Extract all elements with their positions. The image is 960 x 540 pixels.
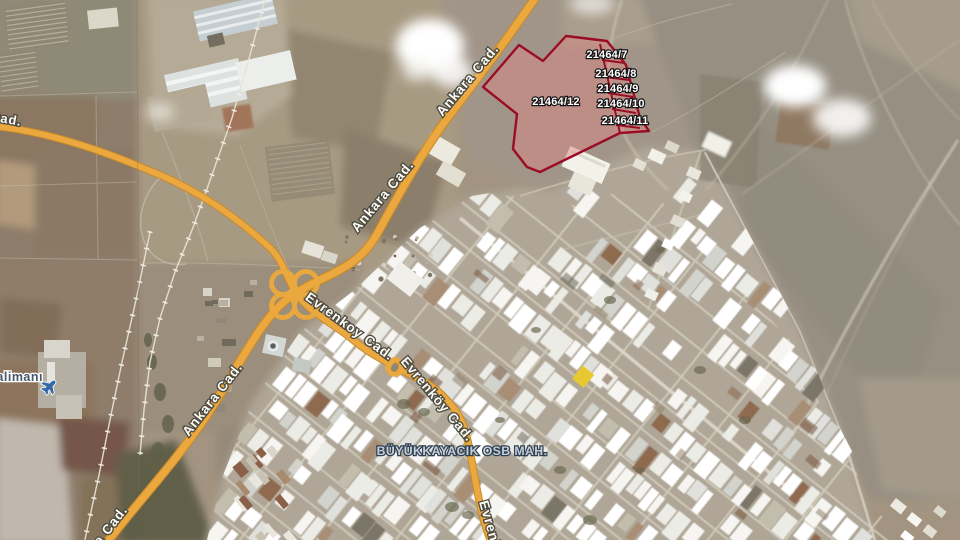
svg-text:21464/10: 21464/10: [597, 98, 644, 110]
svg-text:BÜYÜKKAYACIK OSB MAH.: BÜYÜKKAYACIK OSB MAH.: [377, 443, 548, 458]
svg-text:21464/7: 21464/7: [586, 49, 627, 61]
svg-text:21464/8: 21464/8: [595, 68, 636, 80]
svg-text:alimanı: alimanı: [0, 370, 43, 384]
svg-text:21464/9: 21464/9: [597, 83, 638, 95]
svg-text:21464/11: 21464/11: [602, 115, 649, 127]
svg-text:21464/12: 21464/12: [532, 96, 579, 108]
